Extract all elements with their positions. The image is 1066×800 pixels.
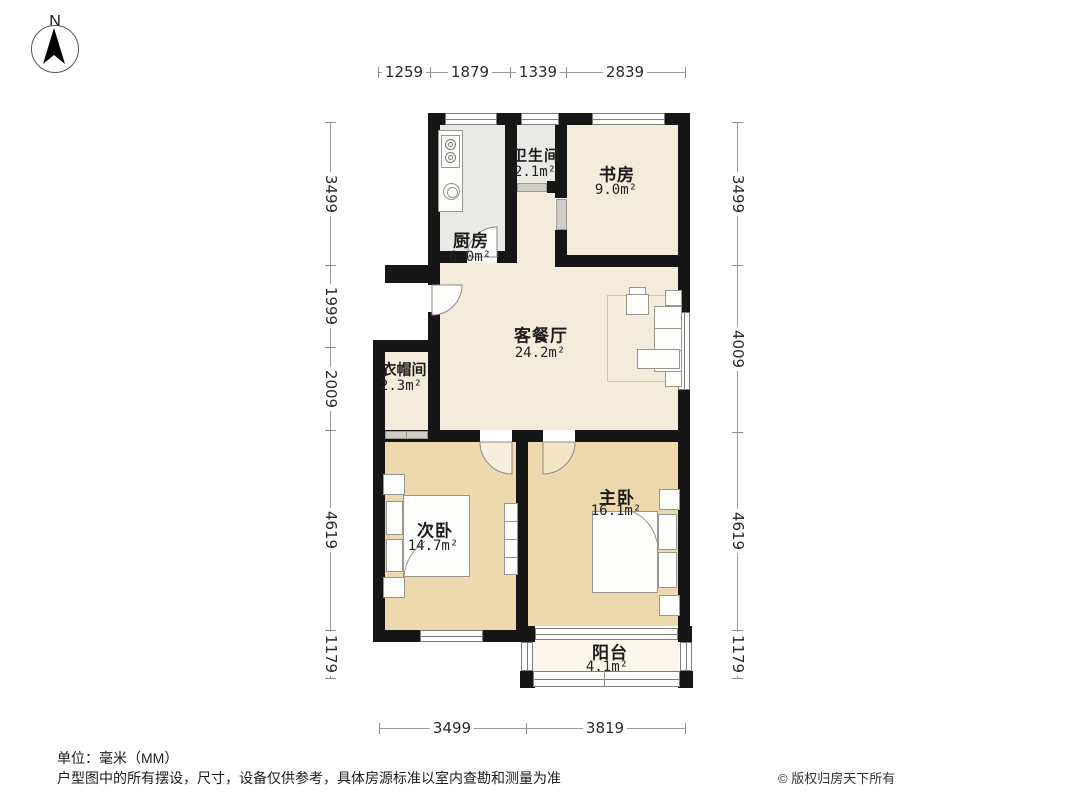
kitchen-label: 厨房 [453,227,489,252]
study-door [556,199,567,230]
dim-tick [325,678,336,679]
dim-top-2: 1879 [448,63,492,81]
wall-study-bottom [555,255,690,267]
wall-bedrooms-top-c [575,430,678,442]
dim-tick [566,67,567,78]
dim-line-bottom [379,728,685,729]
dim-tick [732,265,743,266]
compass: N [30,10,82,74]
dim-tick [325,630,336,631]
dim-right-4: 1179 [729,632,747,676]
balcony-window-right [680,642,692,671]
wall-left-upper-b [428,312,440,442]
dim-tick [685,723,686,734]
sink-basin-icon [447,187,458,198]
dim-right-2: 4009 [729,327,747,371]
wall-kitchen-right [505,113,517,263]
dim-tick [685,67,686,78]
nightstand-icon [659,489,680,510]
kitchen-area: 6.0m² [449,249,491,265]
dim-top-3: 1339 [516,63,560,81]
bathroom-door [517,183,547,192]
dim-tick [526,723,527,734]
dim-tick [378,67,379,78]
dim-bottom-2: 3819 [583,719,627,737]
kitchen-window [445,113,497,125]
living-area: 24.2m² [515,345,566,361]
floorplan-canvas: N [0,0,1066,800]
master-bedroom-door-swing [543,442,575,474]
nightstand-icon [659,595,680,616]
dim-top-1: 1259 [382,63,426,81]
stove-knob-icon [448,142,453,147]
pillow-icon [658,514,677,550]
dim-top-4: 2839 [603,63,647,81]
dim-tick [325,122,336,123]
coffee-table-icon [637,349,680,369]
armchair-icon [626,294,649,315]
sofa-cushion-line [654,328,682,329]
pillow-icon [386,501,403,535]
balcony-window-left [521,642,533,671]
side-table-icon [665,290,682,306]
dim-tick [379,723,380,734]
dim-right-3: 4619 [729,509,747,553]
wardrobe-shelf-line [504,521,518,522]
cloakroom-door-divider [406,431,407,439]
secondary-bedroom-door-swing [480,442,512,474]
bathroom-area: 2.1m² [514,164,556,180]
dim-tick [430,67,431,78]
wall-entry-stub [385,265,440,283]
dim-tick [732,432,743,433]
dim-tick [325,265,336,266]
dim-left-2: 1999 [322,284,340,328]
dim-tick [510,67,511,78]
dim-tick [732,678,743,679]
dim-left-3: 2009 [322,367,340,411]
disclaimer-note: 户型图中的所有摆设，尺寸，设备仅供参考，具体房源标准以室内查勘和测量为准 [57,768,561,788]
balcony-area: 4.1m² [586,659,628,675]
dim-bottom-1: 3499 [430,719,474,737]
dim-left-5: 1179 [322,632,340,676]
cloakroom-area: 2.3m² [380,378,422,394]
balcony-post-bottom-right [678,671,693,688]
wall-bedroom-bottom-a [373,630,420,642]
bathroom-window [521,113,559,125]
nightstand-icon [383,577,405,598]
dim-tick [732,122,743,123]
nightstand-icon [383,474,405,495]
wardrobe-shelf-line [504,539,518,540]
hallway-floor [517,192,555,263]
dim-left-4: 4619 [322,508,340,552]
dim-tick [325,430,336,431]
balcony-post-top-left [516,626,535,642]
wall-bedrooms-top-b [512,430,543,442]
dim-right-1: 3499 [729,172,747,216]
copyright-note: © 版权归房天下所有 [778,768,895,787]
living-label: 客餐厅 [514,322,568,347]
compass-north-arrow-icon [31,25,77,71]
wall-kitchen-bottom-b [497,251,517,263]
stove-knob-icon [448,155,453,160]
balcony-post-top-right [678,626,692,642]
dim-tick [732,630,743,631]
dim-tick [325,347,336,348]
pillow-icon [658,552,677,588]
secondary-bedroom-area: 14.7m² [408,538,459,554]
study-window [592,113,665,125]
entry-door-swing [432,285,462,315]
master-bedroom-area: 16.1m² [591,503,642,519]
cloakroom-label: 衣帽间 [381,359,426,380]
unit-note: 单位：毫米（MM） [57,748,178,768]
pillow-icon [386,539,403,572]
wardrobe-shelf-line [504,557,518,558]
side-table-icon [665,371,682,387]
bathroom-label: 卫生间 [512,145,560,166]
secondary-bedroom-window [420,630,483,642]
dim-left-1: 3499 [322,172,340,216]
study-area: 9.0m² [595,182,637,198]
